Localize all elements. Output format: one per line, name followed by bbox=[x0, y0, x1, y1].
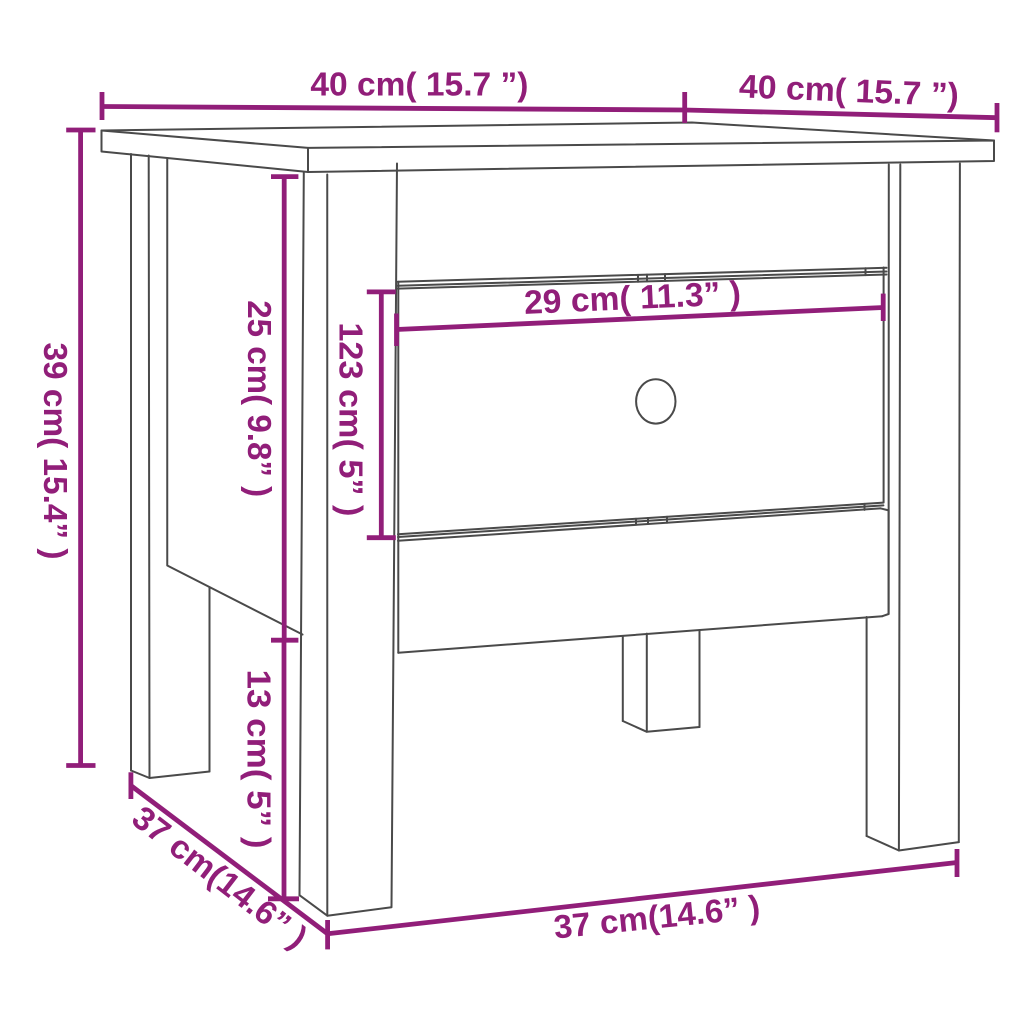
svg-text:123 cm( 5” ): 123 cm( 5” ) bbox=[333, 322, 370, 516]
svg-text:13 cm( 5” ): 13 cm( 5” ) bbox=[241, 670, 278, 849]
svg-text:25 cm( 9.8” ): 25 cm( 9.8” ) bbox=[241, 300, 278, 497]
svg-text:40 cm( 15.7 ”): 40 cm( 15.7 ”) bbox=[738, 67, 959, 113]
svg-text:39 cm( 15.4” ): 39 cm( 15.4” ) bbox=[37, 343, 74, 560]
svg-text:40 cm( 15.7 ”): 40 cm( 15.7 ”) bbox=[310, 66, 528, 103]
